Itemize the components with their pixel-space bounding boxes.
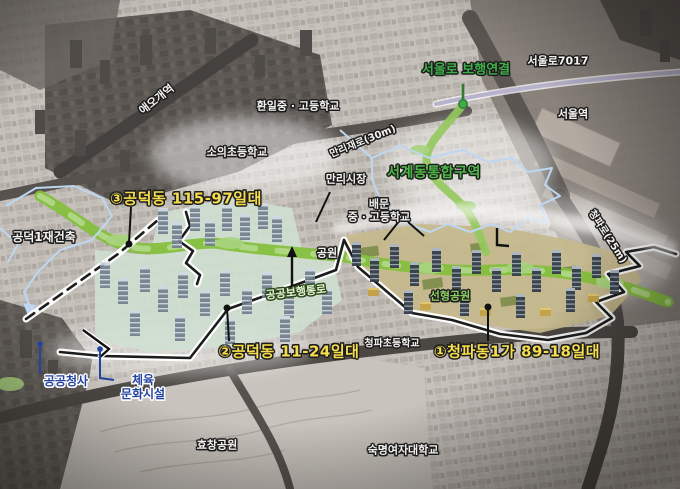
map-render (0, 0, 680, 489)
redevelopment-map: 애오개역 환일중 · 고등학교 소의초등학교 ③공덕동 115-97일대 공덕1… (0, 0, 680, 489)
vignette (0, 0, 680, 489)
